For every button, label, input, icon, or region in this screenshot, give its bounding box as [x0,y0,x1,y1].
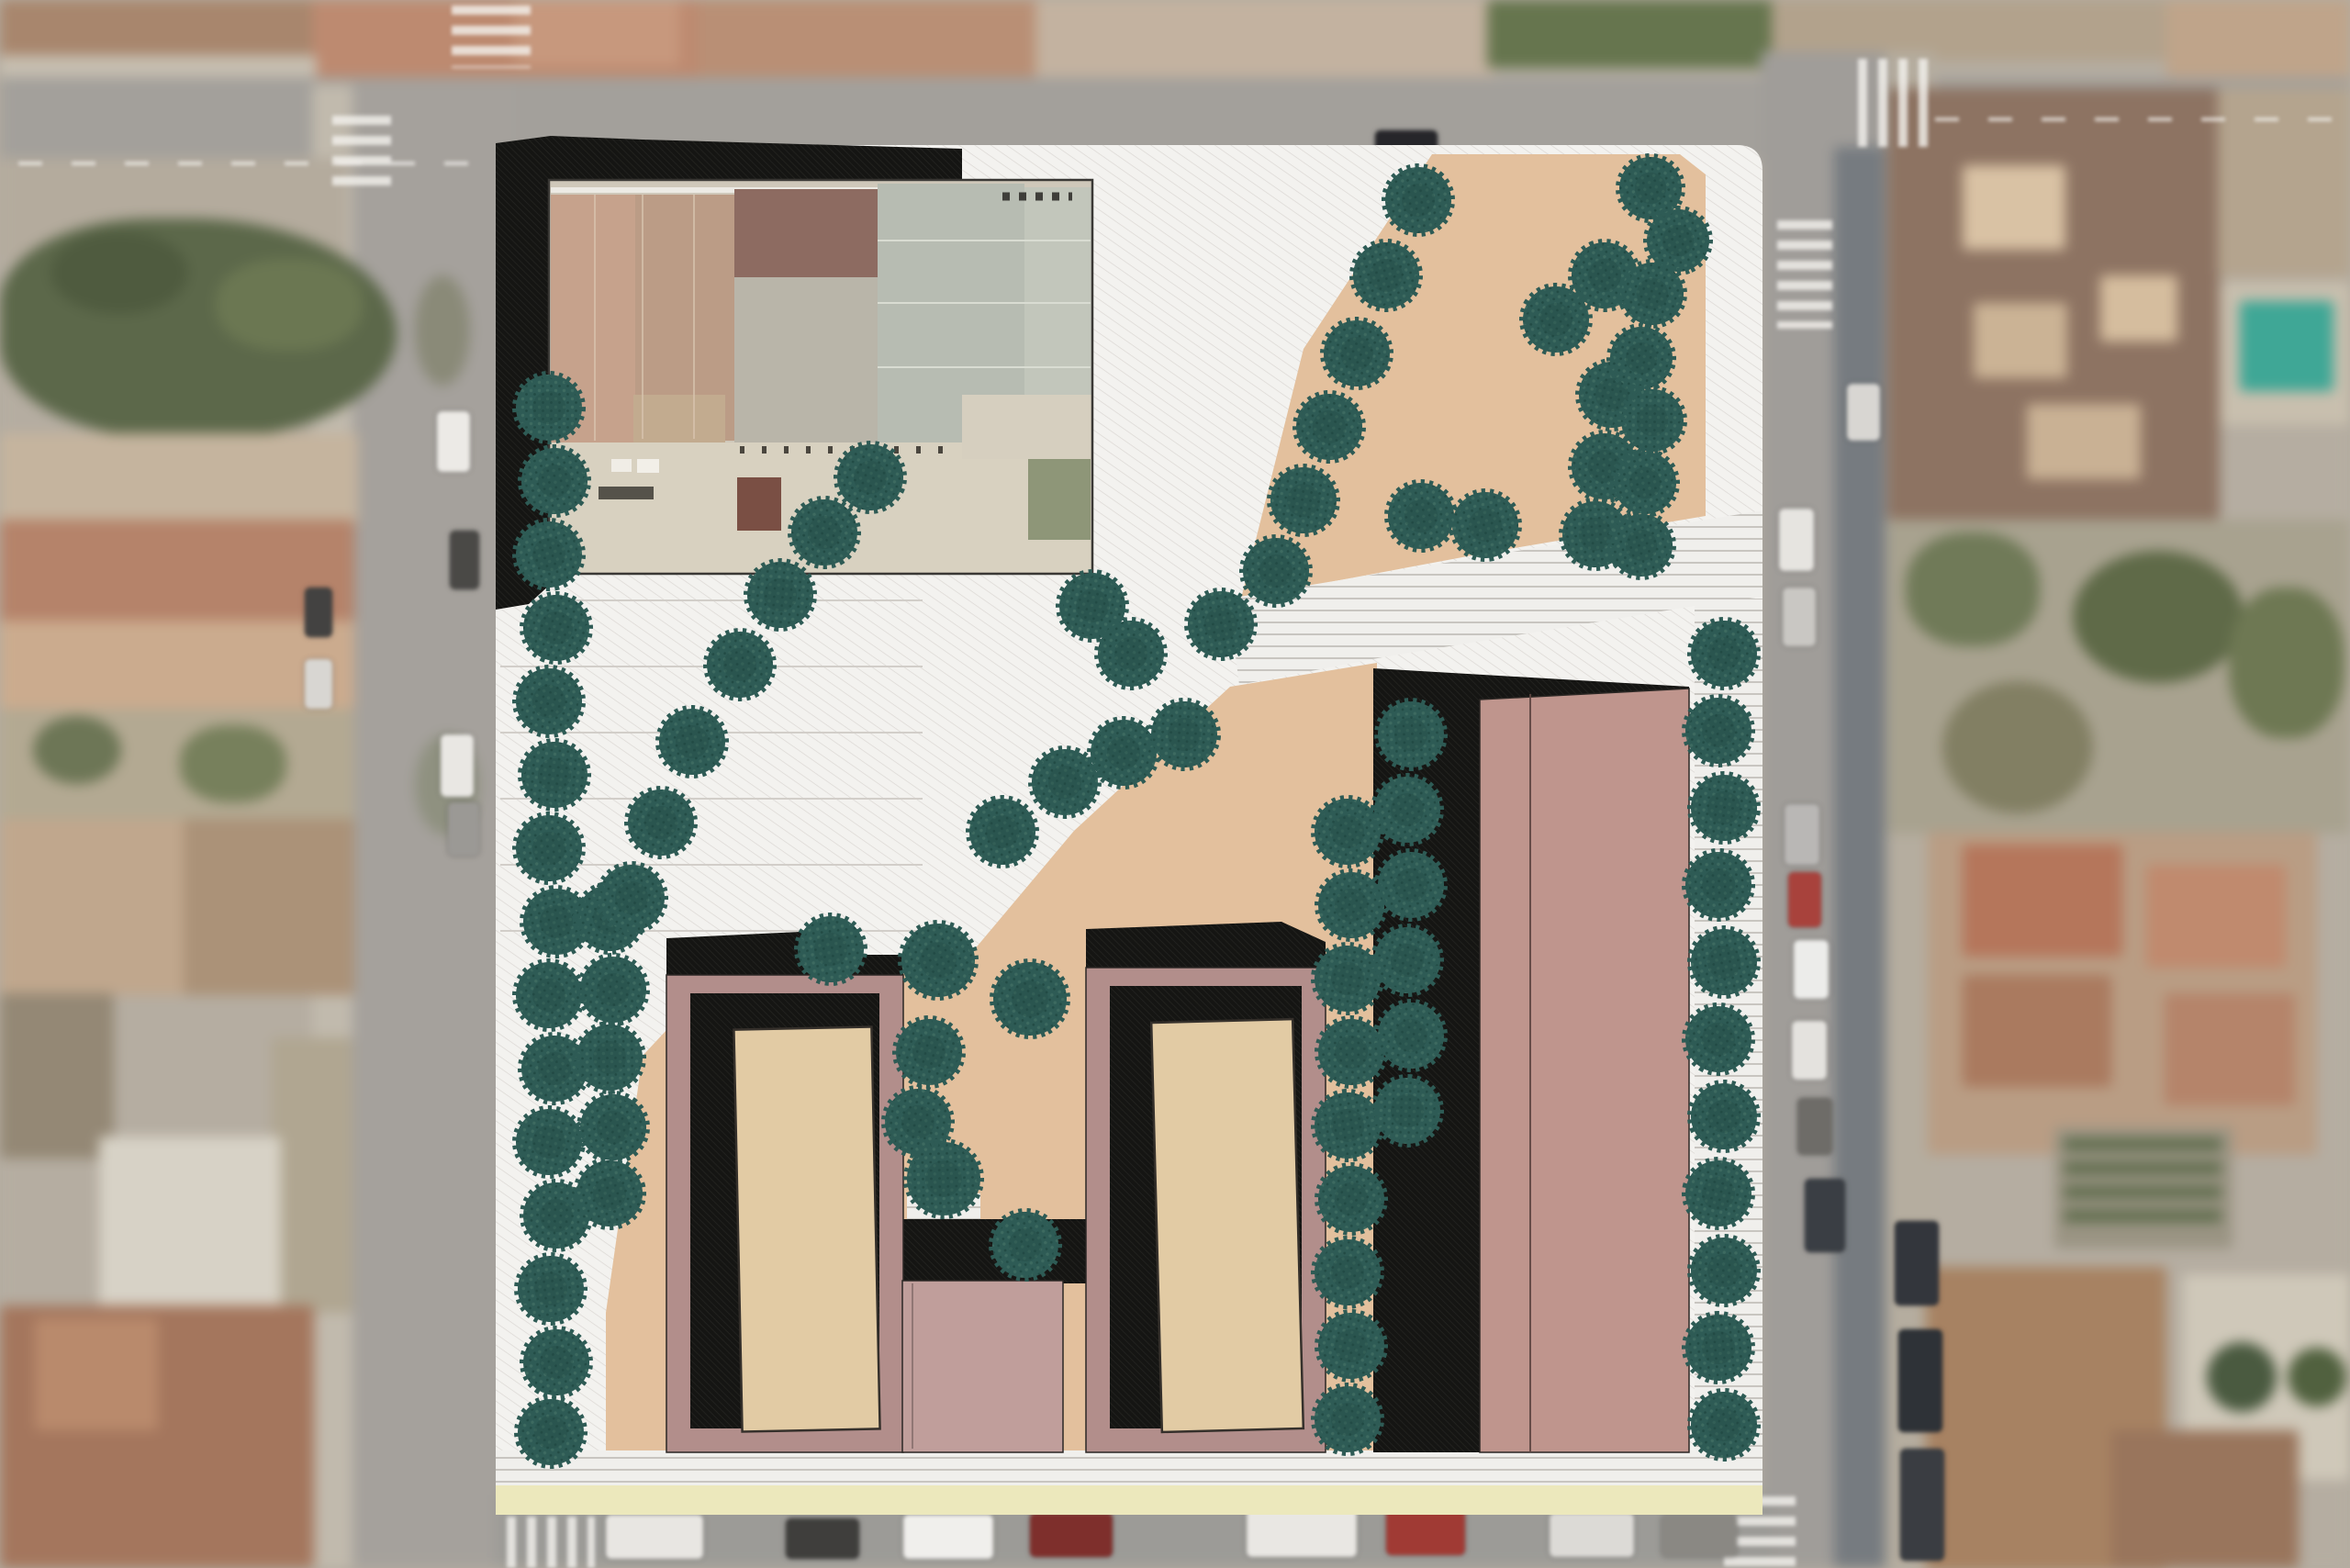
curb-band [496,1485,1762,1515]
building-shadow [1086,922,1326,968]
masterplan-overlay [0,0,2350,1568]
tree [516,375,582,441]
courtyard-building-left [666,975,903,1452]
connector-building [902,1281,1063,1452]
striped-pavement [496,1450,1762,1485]
aerial-masterplan-canvas [0,0,2350,1568]
tower-building [1480,689,1689,1452]
courtyard-building-right [1086,968,1326,1452]
